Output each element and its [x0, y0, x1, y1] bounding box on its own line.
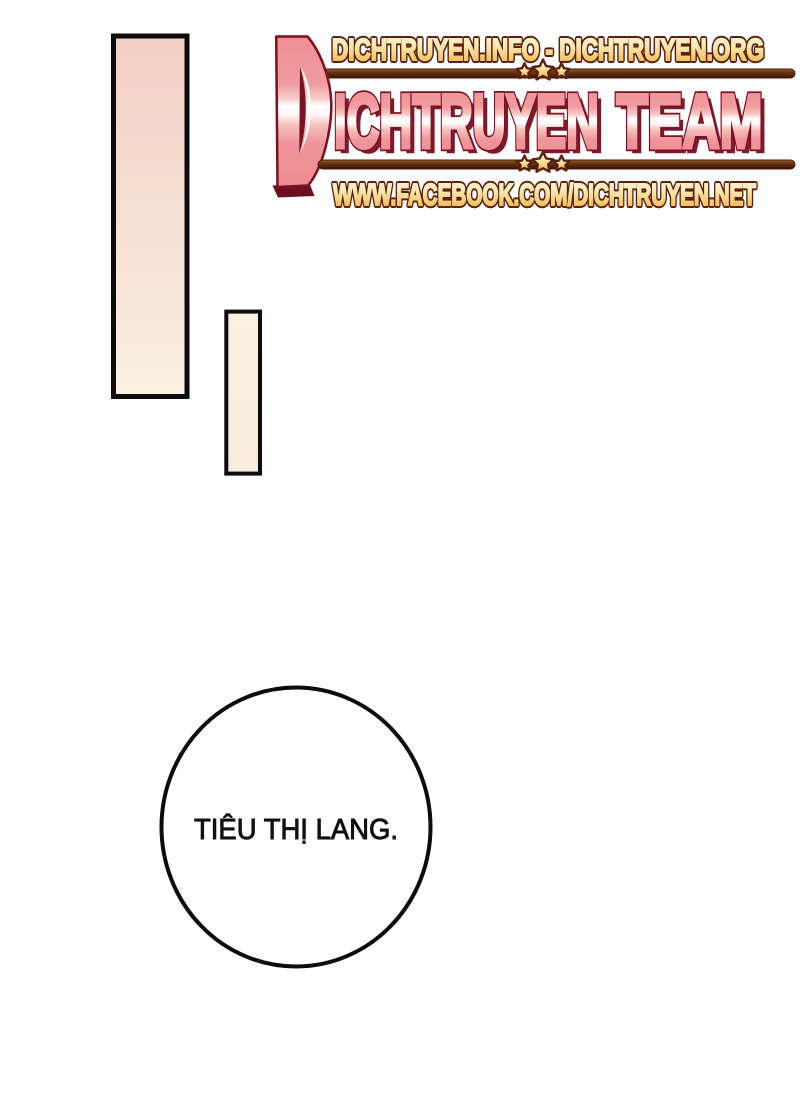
svg-text:DICHTRUYEN.INFO - DICHTRUYEN.O: DICHTRUYEN.INFO - DICHTRUYEN.ORG: [332, 32, 764, 67]
svg-text:TEAM: TEAM: [617, 80, 763, 165]
svg-text:WWW.FACEBOOK.COM/DICHTRUYEN.NE: WWW.FACEBOOK.COM/DICHTRUYEN.NET: [333, 177, 756, 212]
svg-text:ICHTRUYEN: ICHTRUYEN: [334, 80, 599, 165]
svg-text:TIÊU THỊ LANG.: TIÊU THỊ LANG.: [194, 813, 398, 846]
